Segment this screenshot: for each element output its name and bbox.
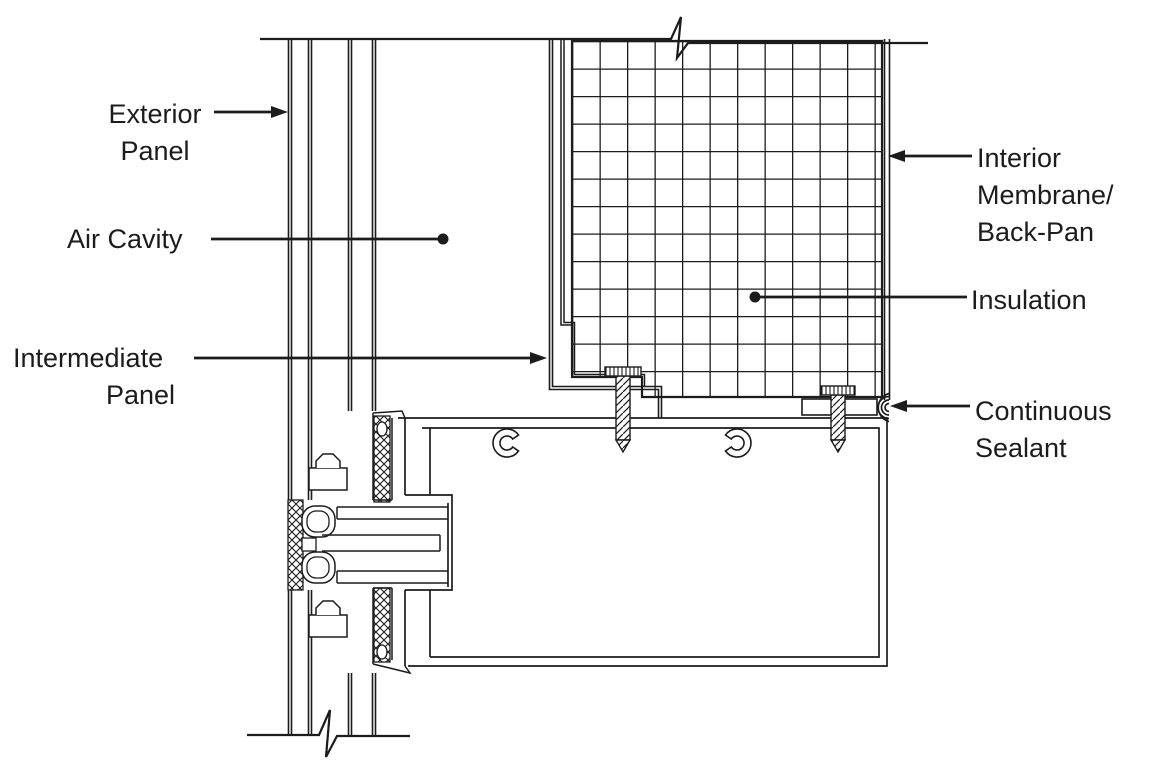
arrowhead [890,400,907,412]
leader-intermediate-panel [194,352,547,364]
label-exterior-panel: Exterior Panel [55,96,255,170]
bottom-border-line [247,710,410,757]
screw-fastener-left [605,367,641,452]
mullion-outer-outline [398,418,887,666]
face-cap-lines [349,39,376,735]
mullion-interlock-pocket [430,495,452,590]
interior-membrane-line [885,39,890,400]
label-line: Insulation [971,282,1087,319]
label-interior-membrane: Interior Membrane/ Back-Pan [977,140,1114,251]
label-intermediate-panel: Intermediate Panel [13,340,175,414]
label-line: Membrane/ [977,177,1114,214]
gasket-bulb-bottom [377,645,387,659]
panel-clip-top [309,454,347,490]
interlock-tongues [322,507,448,583]
screw-head [821,386,855,395]
label-line: Back-Pan [977,214,1114,251]
mullion-box [398,418,887,666]
label-line: Exterior [55,96,255,133]
break-symbol-bottom [247,710,410,757]
label-line: Intermediate [13,340,175,377]
label-line: Air Cavity [67,221,183,258]
label-line: Panel [106,377,175,414]
insulation-grid [572,41,882,397]
label-line: Continuous [975,393,1112,430]
arrowhead [530,352,547,364]
label-line: Panel [55,133,255,170]
interlock-joint [288,500,448,590]
gasket-bulb-top [377,422,387,436]
leader-continuous-sealant [890,400,970,412]
leader-dot [438,234,449,245]
panel-clip-bottom [309,601,347,637]
screw-boss-right [726,429,751,457]
arrowhead [888,150,905,162]
detail-drawing-canvas: Exterior Panel Air Cavity Intermediate P… [0,0,1171,770]
label-line: Sealant [975,430,1112,467]
screw-head [605,367,641,376]
label-continuous-sealant: Continuous Sealant [975,393,1112,467]
mullion-inner-outline [422,428,879,657]
interlock-gasket-hatch [288,500,303,590]
exterior-panel-lines [289,39,312,735]
label-air-cavity: Air Cavity [67,221,183,258]
leader-air-cavity [211,234,449,245]
screw-boss-left [493,429,518,457]
label-line: Interior [977,140,1114,177]
leader-dot [750,292,761,303]
arrowhead [271,106,288,118]
leader-interior-membrane [888,150,972,162]
label-insulation: Insulation [971,282,1087,319]
